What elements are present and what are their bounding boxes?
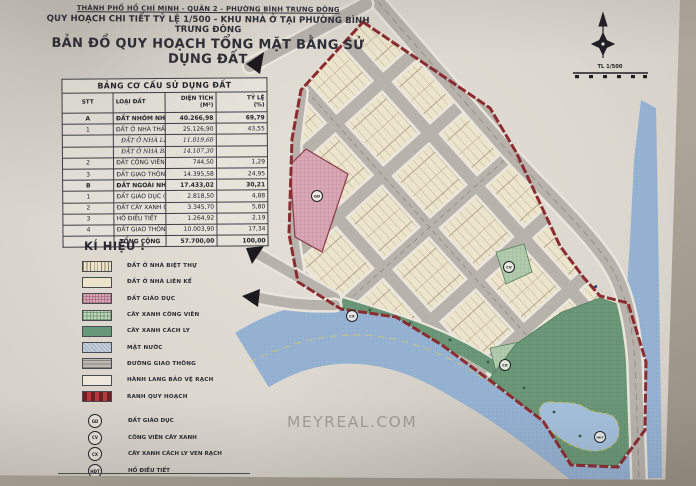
c-pct: 30,21 xyxy=(216,179,267,191)
symbol-circle-CX: CX xyxy=(88,447,102,461)
c-pct: 4,88 xyxy=(216,190,267,202)
c-stt: 1 xyxy=(62,124,113,136)
c-pct: 24,95 xyxy=(216,168,267,180)
legend-item: MẶT NƯỚC xyxy=(82,339,213,355)
c-name: ĐẤT CÂY XANH CÁCH LY VEN RẠCH xyxy=(114,202,165,214)
legend-symbol-list: GDĐẤT GIÁO DỤCCVCÔNG VIÊN CÂY XANHCXCÂY … xyxy=(88,413,222,479)
legend-symbol: CXCÂY XANH CÁCH LY VEN RẠCH xyxy=(88,446,222,463)
col-ty-le: TỶ LỆ (%) xyxy=(216,92,267,112)
legend-item: RANH QUY HOẠCH xyxy=(82,388,213,404)
c-name: ĐẤT NHÓM NHÀ Ở xyxy=(113,113,164,125)
symbol-circle-CV: CV xyxy=(88,431,102,445)
c-area: 14.107,30 xyxy=(165,146,216,158)
c-stt: 3 xyxy=(63,214,114,226)
legend-item: ĐƯỜNG GIAO THÔNG xyxy=(82,356,213,372)
c-pct: 5,80 xyxy=(217,201,268,213)
legend-item-label: ĐẤT Ở NHÀ BIỆT THỰ xyxy=(127,263,197,269)
c-stt: 1 xyxy=(63,191,114,203)
c-name: ĐẤT Ở NHÀ LIÊN KẾ CÓ SÂN VƯỜN xyxy=(114,135,165,147)
c-name: ĐẤT Ở NHÀ BIỆT THỰ xyxy=(114,146,165,158)
col-dien-tich: DIỆN TÍCH (M²) xyxy=(165,92,216,112)
legend-item: HÀNH LANG BẢO VỆ RẠCH xyxy=(82,372,213,388)
c-area: 10.003,90 xyxy=(165,224,216,236)
c-area: 3.345,70 xyxy=(165,202,216,214)
paper-sheet: TL 1/500 GDCVCXCXHĐT THÀNH PHỐ HỒ CHÍ MI… xyxy=(0,0,696,486)
legend-symbol-label: ĐẤT GIÁO DỤC xyxy=(128,418,174,424)
legend-item: ĐẤT Ở NHÀ LIÊN KẾ xyxy=(82,274,213,290)
isolation-swatch xyxy=(82,326,112,337)
c-area: 14.395,58 xyxy=(165,168,216,180)
legend-item: ĐẤT GIÁO DỤC xyxy=(82,291,213,307)
c-name: ĐẤT GIAO THÔNG ĐỐI NGOẠI xyxy=(114,224,165,236)
c-name: ĐẤT GIAO THÔNG NHÓM Ở xyxy=(114,168,165,180)
c-stt: 2 xyxy=(63,202,114,214)
legend-item-label: MẶT NƯỚC xyxy=(127,345,163,351)
zone-marker-label: CX xyxy=(502,362,508,367)
c-name: ĐẤT CÔNG VIÊN CÂY XANH xyxy=(114,157,165,169)
water-swatch xyxy=(82,342,112,353)
c-area: 40.266,98 xyxy=(165,112,216,124)
boundary-swatch xyxy=(82,391,112,402)
legend-divider xyxy=(58,473,250,474)
legend-swatch-list: ĐẤT Ở NHÀ BIỆT THỰĐẤT Ở NHÀ LIÊN KẾĐẤT G… xyxy=(82,258,213,405)
photo-of-planning-document: TL 1/500 GDCVCXCXHĐT THÀNH PHỐ HỒ CHÍ MI… xyxy=(0,0,696,486)
c-pct: 100,00 xyxy=(217,235,268,247)
scale-bar xyxy=(573,73,648,78)
legend-item-label: CÂY XANH CÁCH LY xyxy=(127,328,190,334)
c-pct: 2,19 xyxy=(217,212,268,224)
legend-title: KÍ HIỆU : xyxy=(84,239,145,253)
c-pct: 43,55 xyxy=(216,123,267,135)
c-pct xyxy=(216,145,267,157)
legend-item-label: HÀNH LANG BẢO VỆ RẠCH xyxy=(127,377,213,383)
c-name: ĐẤT Ở NHÀ THẤP TẦNG xyxy=(113,124,164,136)
c-pct xyxy=(216,134,267,146)
rowhouse-swatch xyxy=(82,277,112,288)
c-pct: 1,29 xyxy=(216,157,267,169)
c-area: 1.264,92 xyxy=(165,213,216,225)
header-project-line: QUY HOẠCH CHI TIẾT TỶ LỆ 1/500 - KHU NHÀ… xyxy=(40,13,376,35)
title-block: THÀNH PHỐ HỒ CHÍ MINH - QUẬN 2 - PHƯỜNG … xyxy=(40,4,376,68)
header-city-line: THÀNH PHỐ HỒ CHÍ MINH - QUẬN 2 - PHƯỜNG … xyxy=(40,4,376,14)
c-area: 17.433,02 xyxy=(165,179,216,191)
zone-marker-label: CV xyxy=(506,264,512,269)
c-area: 25.126,90 xyxy=(165,123,216,135)
c-pct: 17,34 xyxy=(217,224,268,236)
zone-marker-label: HĐT xyxy=(596,435,604,439)
c-stt: 4 xyxy=(63,225,114,237)
c-name: ĐẤT GIÁO DỤC (TRƯỜNG MẦM NON) xyxy=(114,191,165,203)
legend-item-label: CÂY XANH CÔNG VIÊN xyxy=(127,312,199,318)
c-stt: A xyxy=(62,113,113,125)
table-header-row: STT LOẠI ĐẤT DIỆN TÍCH (M²) TỶ LỆ (%) xyxy=(62,92,267,113)
zone-marker-label: GD xyxy=(314,193,320,198)
c-stt: 2 xyxy=(62,158,113,170)
watermark: MEYREAL.COM xyxy=(287,413,417,431)
road-swatch xyxy=(82,358,112,369)
symbol-circle-HĐT: HĐT xyxy=(88,464,102,478)
table-title: BẢNG CƠ CẤU SỬ DỤNG ĐẤT xyxy=(62,78,267,93)
c-area: 57.700,00 xyxy=(166,235,217,247)
c-name: HỒ ĐIỀU TIẾT xyxy=(114,213,165,225)
c-pct: 69,79 xyxy=(216,112,267,124)
villa-swatch xyxy=(82,261,112,272)
c-stt xyxy=(62,146,113,158)
legend-item-label: ĐẤT GIÁO DỤC xyxy=(127,296,175,302)
legend-symbol: CVCÔNG VIÊN CÂY XANH xyxy=(88,430,222,447)
land-use-table: BẢNG CƠ CẤU SỬ DỤNG ĐẤT STT LOẠI ĐẤT DIỆ… xyxy=(61,77,268,248)
legend-item: ĐẤT Ở NHÀ BIỆT THỰ xyxy=(82,258,213,274)
c-stt xyxy=(62,135,113,147)
legend-item: CÂY XANH CÁCH LY xyxy=(82,323,213,339)
map-title: BẢN ĐỒ QUY HOẠCH TỔNG MẶT BẰNG SỬ DỤNG Đ… xyxy=(40,35,376,67)
c-area: 2.818,50 xyxy=(165,190,216,202)
legend-symbol-label: CÂY XANH CÁCH LY VEN RẠCH xyxy=(128,451,222,457)
c-stt: B xyxy=(63,180,114,192)
legend-item-label: ĐƯỜNG GIAO THÔNG xyxy=(127,361,196,367)
park-swatch xyxy=(82,310,112,321)
c-area: 11.019,60 xyxy=(165,135,216,147)
legend-symbol: GDĐẤT GIÁO DỤC xyxy=(88,413,222,430)
legend-symbol: HĐTHỒ ĐIỀU TIẾT xyxy=(88,463,222,480)
legend-item-label: ĐẤT Ở NHÀ LIÊN KẾ xyxy=(127,279,192,285)
legend-symbol-label: CÔNG VIÊN CÂY XANH xyxy=(128,435,197,441)
corridor-swatch xyxy=(82,375,112,386)
legend-item: CÂY XANH CÔNG VIÊN xyxy=(82,307,213,323)
c-area: 744,50 xyxy=(165,157,216,169)
legend-item-label: RANH QUY HOẠCH xyxy=(127,394,188,400)
zone-marker-label: CX xyxy=(349,313,355,318)
symbol-circle-GD: GD xyxy=(88,414,102,428)
north-compass xyxy=(592,13,614,58)
c-name: ĐẤT NGOÀI NHÓM NHÀ Ở xyxy=(114,180,165,192)
col-loai-dat: LOẠI ĐẤT xyxy=(113,93,164,113)
col-stt: STT xyxy=(62,93,113,113)
education-swatch xyxy=(82,293,112,304)
c-stt: 3 xyxy=(63,169,114,181)
scale-label: TL 1/500 xyxy=(598,64,623,70)
